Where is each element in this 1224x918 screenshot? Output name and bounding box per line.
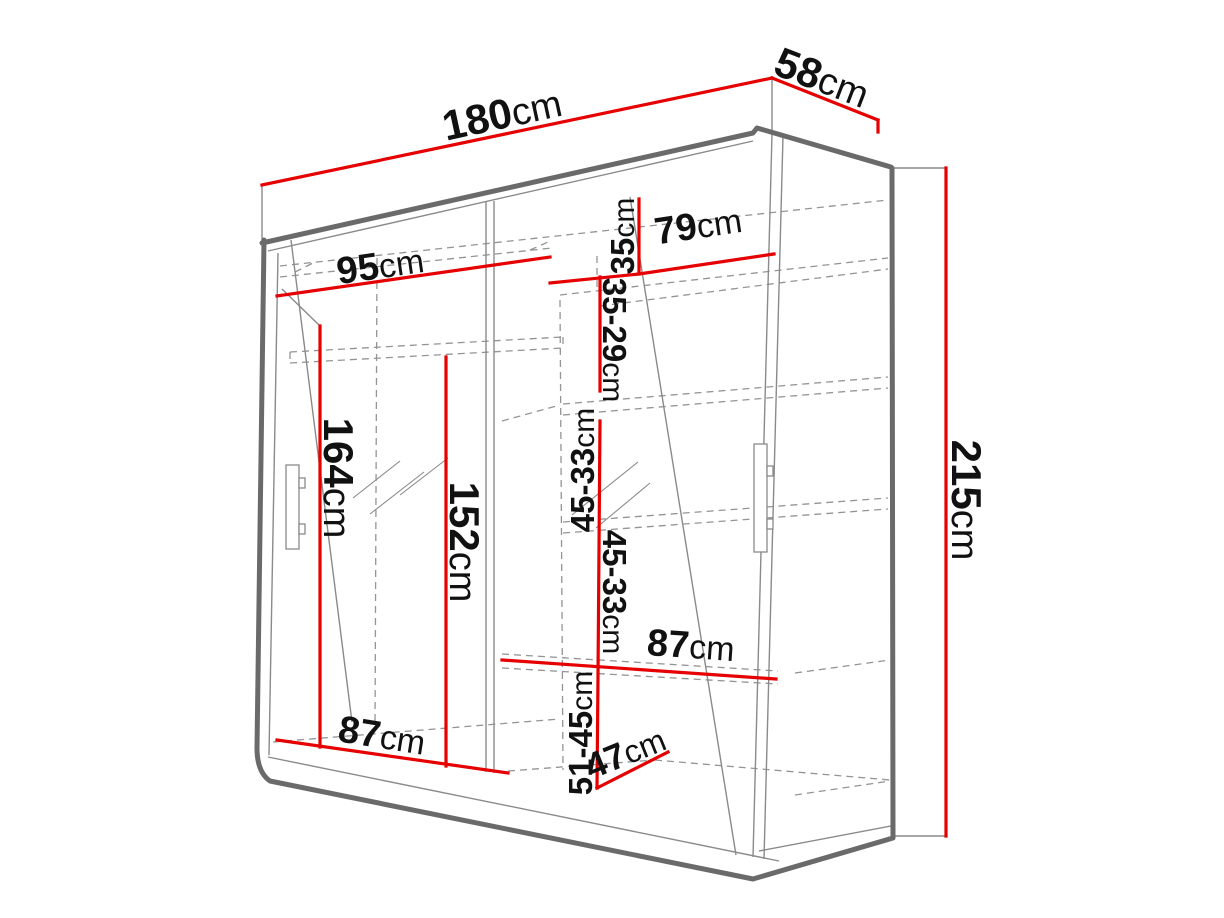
dim-depth-label: 58cm <box>768 38 876 117</box>
dim-87-left-label: 87cm <box>335 709 428 764</box>
door-handle-right <box>754 444 773 552</box>
diagram-canvas: 180cm 58cm 215cm 95cm 79cm 35cm 35-29cm … <box>0 0 1224 918</box>
dim-line-79 <box>550 254 774 283</box>
dim-95-label: 95cm <box>334 239 427 293</box>
dim-45-33a-label: 45-33cm <box>564 408 601 532</box>
mirror-hatch <box>353 458 650 528</box>
dim-width-label: 180cm <box>438 78 566 149</box>
wardrobe-dimension-diagram: 180cm 58cm 215cm 95cm 79cm 35cm 35-29cm … <box>0 0 1224 918</box>
dim-87-mid-label: 87cm <box>646 622 736 670</box>
dim-height-label: 215cm <box>943 440 990 561</box>
dim-35-label: 35cm <box>604 198 641 275</box>
dim-45-33b-label: 45-33cm <box>596 530 633 654</box>
dim-164-label: 164cm <box>315 418 362 539</box>
dim-79-label: 79cm <box>652 199 745 253</box>
dim-152-label: 152cm <box>441 482 488 603</box>
dim-35-29-label: 35-29cm <box>596 278 633 402</box>
door-handle-left <box>286 465 305 549</box>
